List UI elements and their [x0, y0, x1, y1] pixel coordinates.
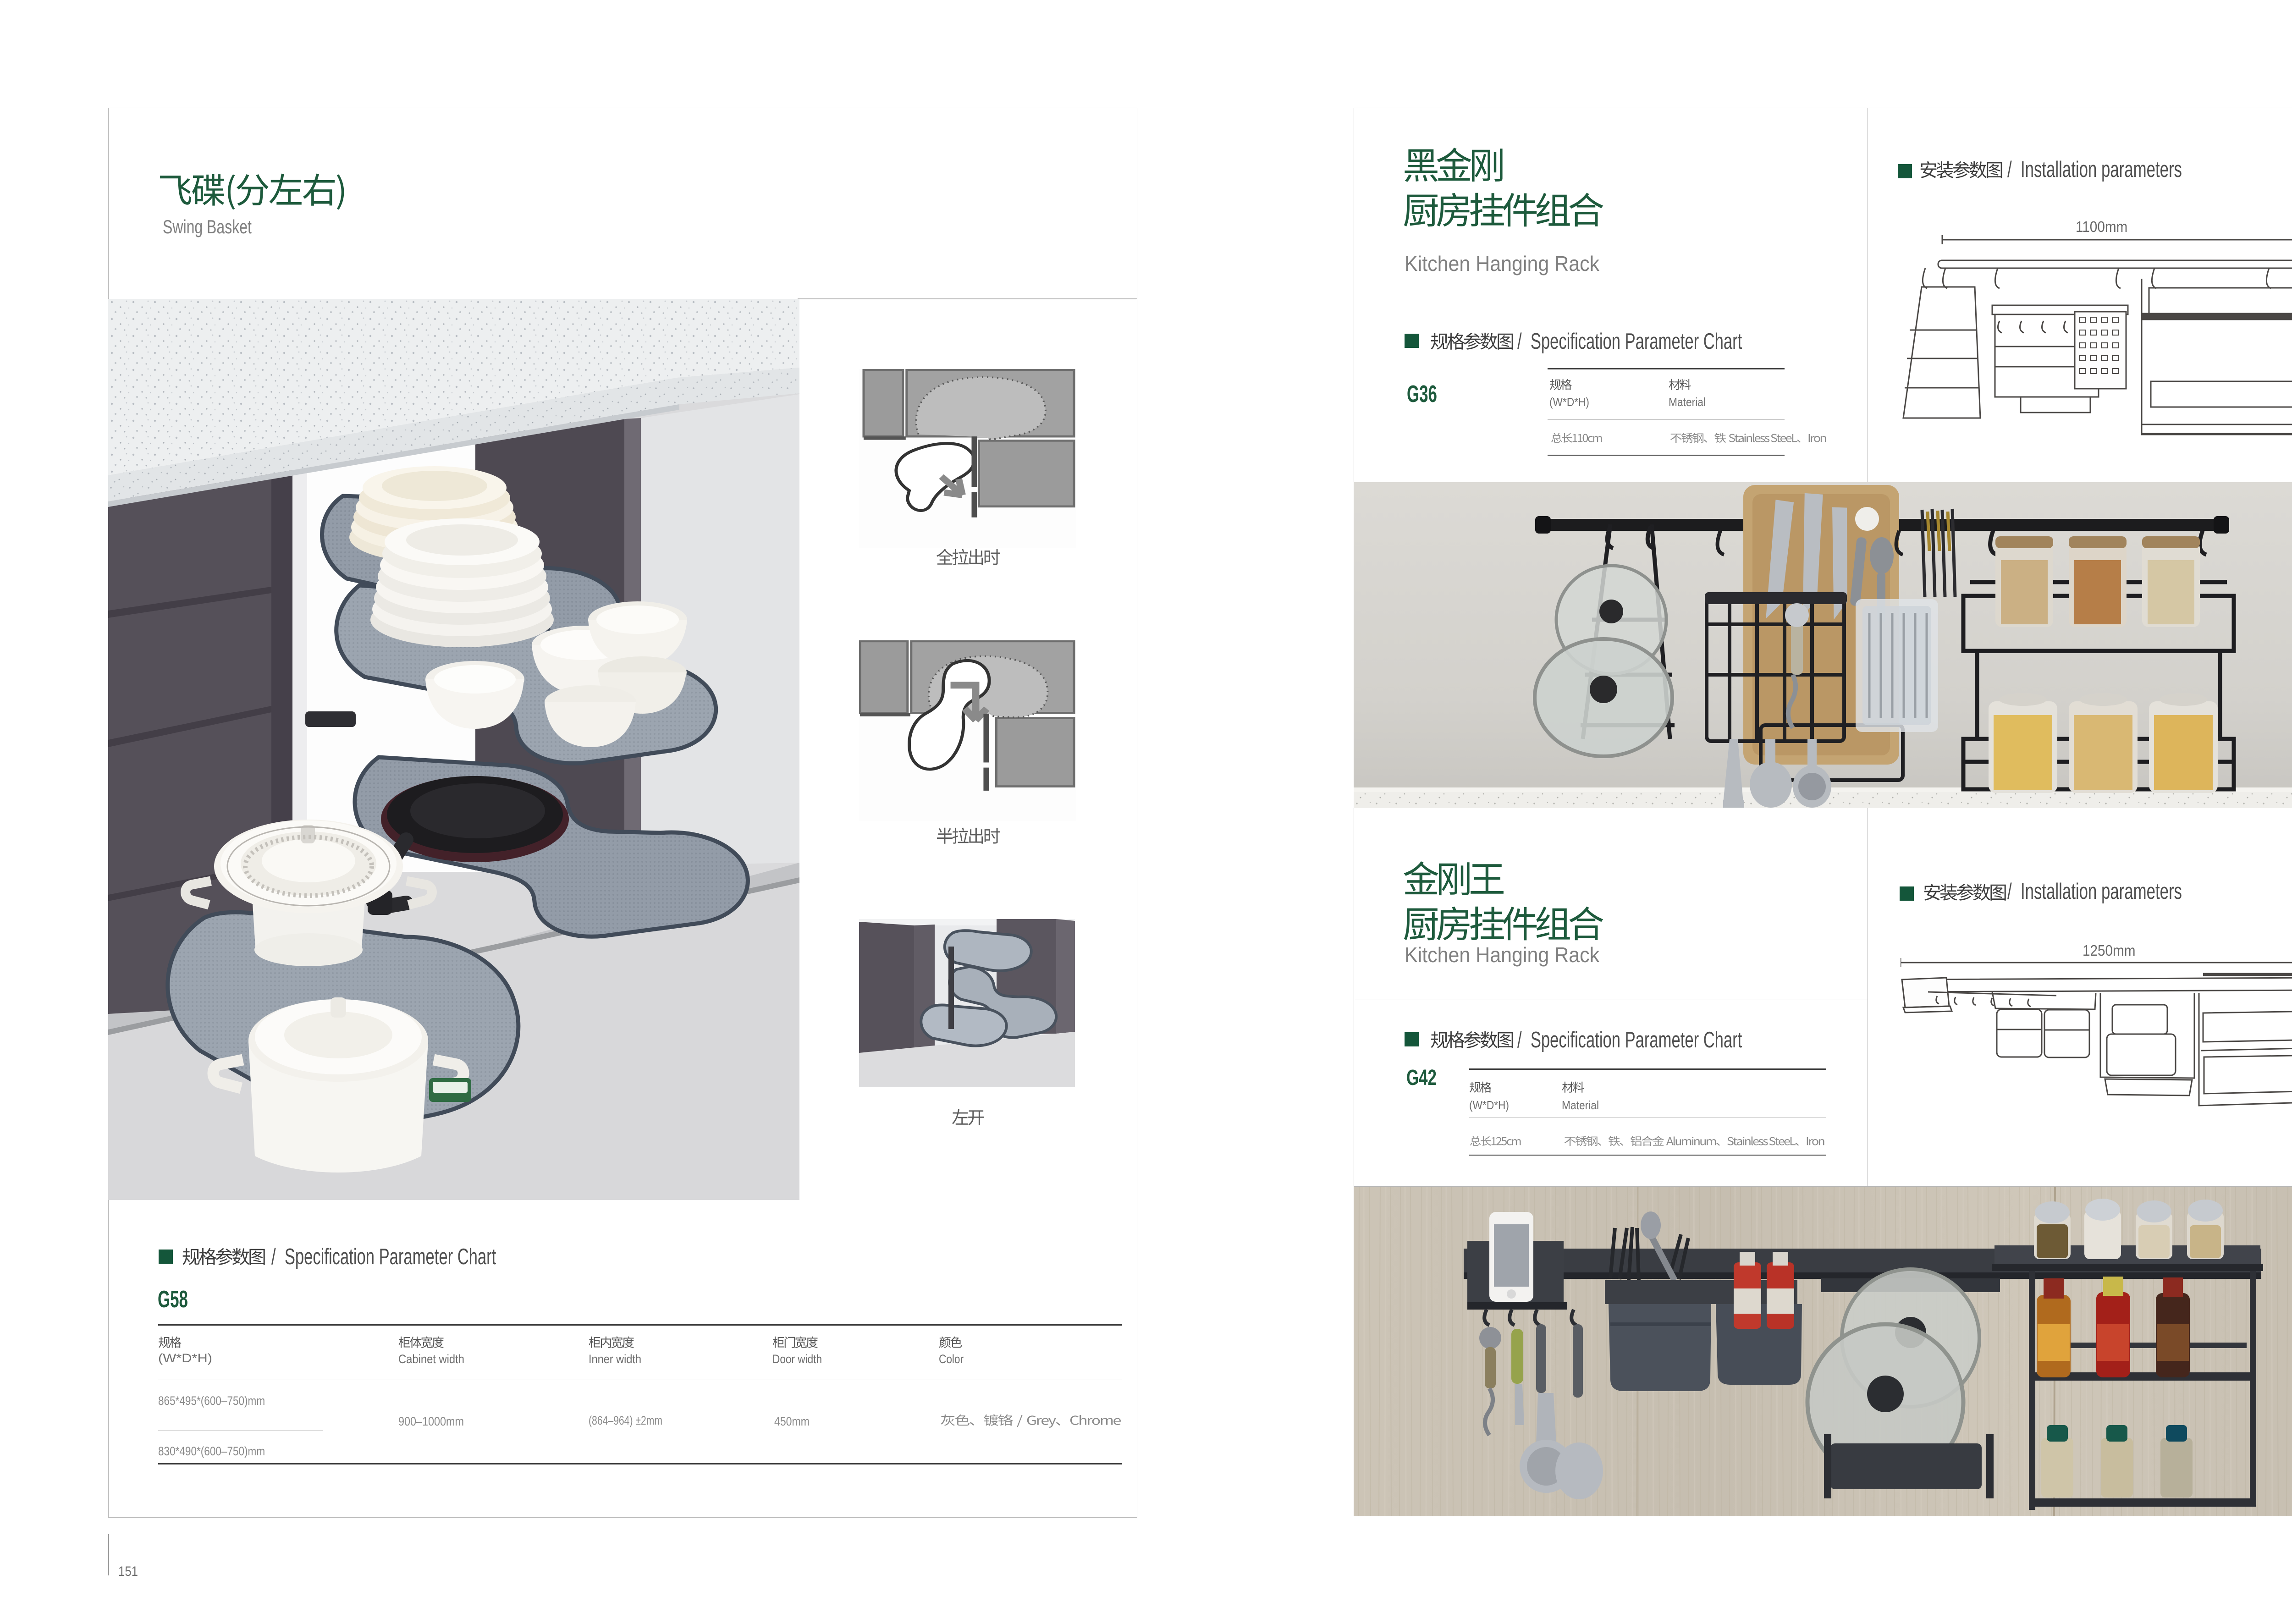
svg-text:1250mm: 1250mm — [2083, 942, 2135, 959]
svg-text:1100mm: 1100mm — [2076, 219, 2127, 236]
